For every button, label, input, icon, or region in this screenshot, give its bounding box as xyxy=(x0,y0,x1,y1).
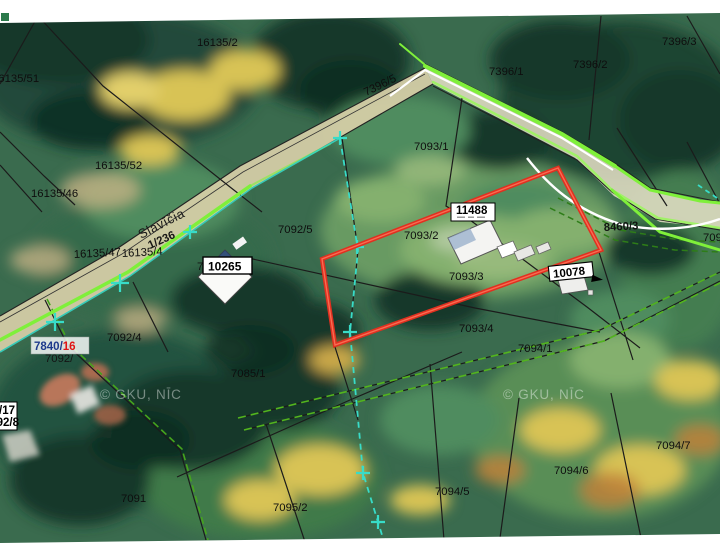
svg-text:7840/16: 7840/16 xyxy=(34,341,76,353)
edge-label-line1: 7840/17 xyxy=(0,405,15,417)
watermark: © GKU, NĪC xyxy=(503,387,585,402)
watermark: © GKU, NĪC xyxy=(100,387,182,402)
parcel-label: 16135/2 xyxy=(197,37,238,49)
parcel-label: 7092/4 xyxy=(107,332,142,344)
cadastral-map-canvas: 7092/ 7092/6 11488 10265 10078 7840/16 7… xyxy=(0,0,720,560)
building-number: 11488 xyxy=(456,205,488,217)
edge-clipped-label: 7840/17 7092/8 xyxy=(0,402,20,430)
parcel-label: 7396/1 xyxy=(489,66,524,78)
building-label-11488: 11488 xyxy=(451,203,495,221)
parcel-label: 7094/1 xyxy=(518,343,553,355)
parcel-label: 7093/4 xyxy=(459,323,494,335)
building-number: 10265 xyxy=(208,260,242,274)
map-edge-artifact xyxy=(1,13,9,21)
parcel-label: 7093/3 xyxy=(449,271,484,283)
parcel-label: 16135/47 xyxy=(74,247,122,261)
address-parcel-part: 7840/ xyxy=(34,341,64,353)
edge-label-line2: 7092/8 xyxy=(0,417,20,429)
parcel-label: 16135/46 xyxy=(31,188,78,200)
cadastral-map-viewport[interactable]: 7092/ 7092/6 11488 10265 10078 7840/16 7… xyxy=(0,0,720,560)
parcel-label: 7085/1 xyxy=(231,368,266,380)
parcel-label: 7093/1 xyxy=(414,141,449,153)
parcel-label: 7095/2 xyxy=(273,502,308,514)
road-code-label: 8460/3 xyxy=(604,220,639,234)
parcel-label: 7094/6 xyxy=(554,465,589,477)
building-label-10265: 10265 xyxy=(203,257,252,274)
parcel-label: 7092/5 xyxy=(278,224,313,236)
parcel-label: 7093/2 xyxy=(404,230,439,242)
parcel-label: 7092/ xyxy=(45,353,74,365)
parcel-label: 709 xyxy=(703,232,720,244)
parcel-label: 7396/2 xyxy=(573,59,608,71)
parcel-label: 7094/7 xyxy=(656,440,691,452)
address-label-7840-16: 7840/16 xyxy=(31,337,89,354)
parcel-label: 7094/5 xyxy=(435,486,470,498)
parcel-label: 7091 xyxy=(121,493,146,505)
address-house-part: 16 xyxy=(63,341,76,353)
parcel-label: 7396/3 xyxy=(662,36,697,48)
parcel-label: 16135/51 xyxy=(0,73,39,85)
parcel-label: 16135/52 xyxy=(95,160,142,172)
